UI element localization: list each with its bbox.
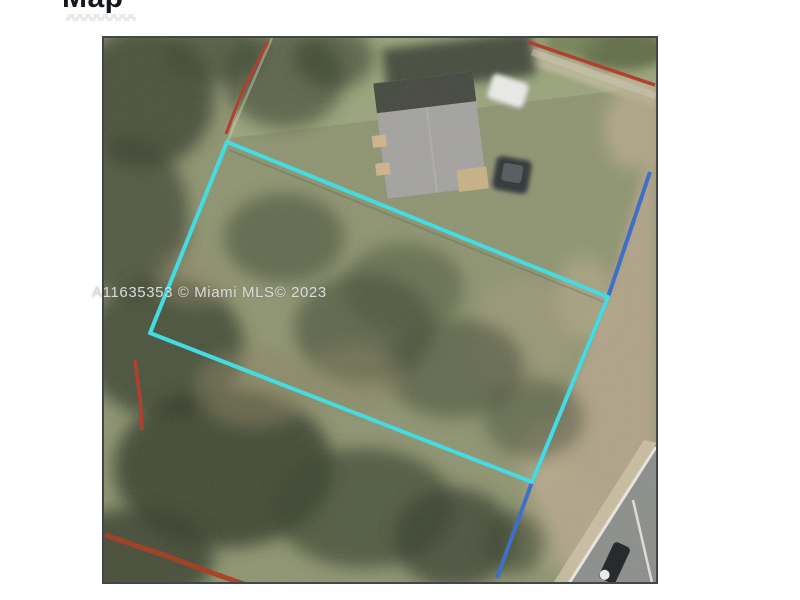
property-aerial-map bbox=[102, 36, 658, 584]
page-title: Map bbox=[62, 0, 124, 15]
aerial-scene bbox=[104, 38, 656, 582]
title-underline-squiggle bbox=[66, 14, 136, 21]
mls-watermark: A11635353 © Miami MLS© 2023 bbox=[92, 284, 327, 301]
photo-grain-overlay bbox=[104, 38, 656, 582]
